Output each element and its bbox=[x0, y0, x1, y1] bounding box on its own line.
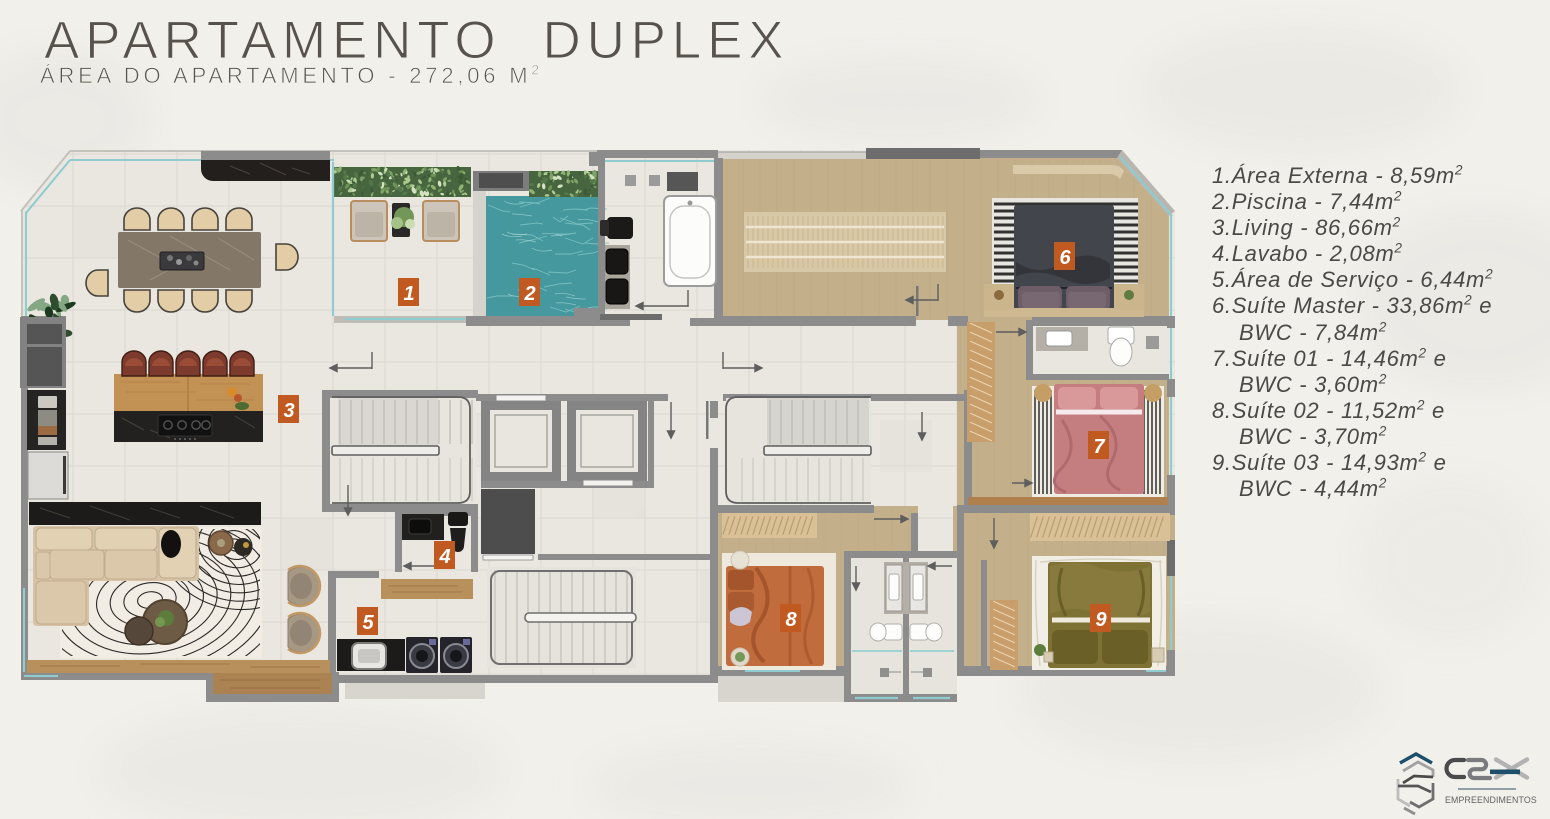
svg-text:EMPREENDIMENTOS: EMPREENDIMENTOS bbox=[1445, 795, 1537, 805]
svg-text:7: 7 bbox=[1093, 436, 1105, 458]
svg-text:8: 8 bbox=[785, 609, 797, 631]
svg-text:5: 5 bbox=[362, 612, 374, 634]
svg-text:4: 4 bbox=[438, 546, 450, 568]
svg-text:6: 6 bbox=[1059, 247, 1071, 269]
svg-text:2: 2 bbox=[523, 283, 535, 305]
svg-text:1: 1 bbox=[403, 283, 414, 305]
svg-text:9: 9 bbox=[1095, 609, 1107, 631]
svg-text:3: 3 bbox=[283, 400, 294, 422]
